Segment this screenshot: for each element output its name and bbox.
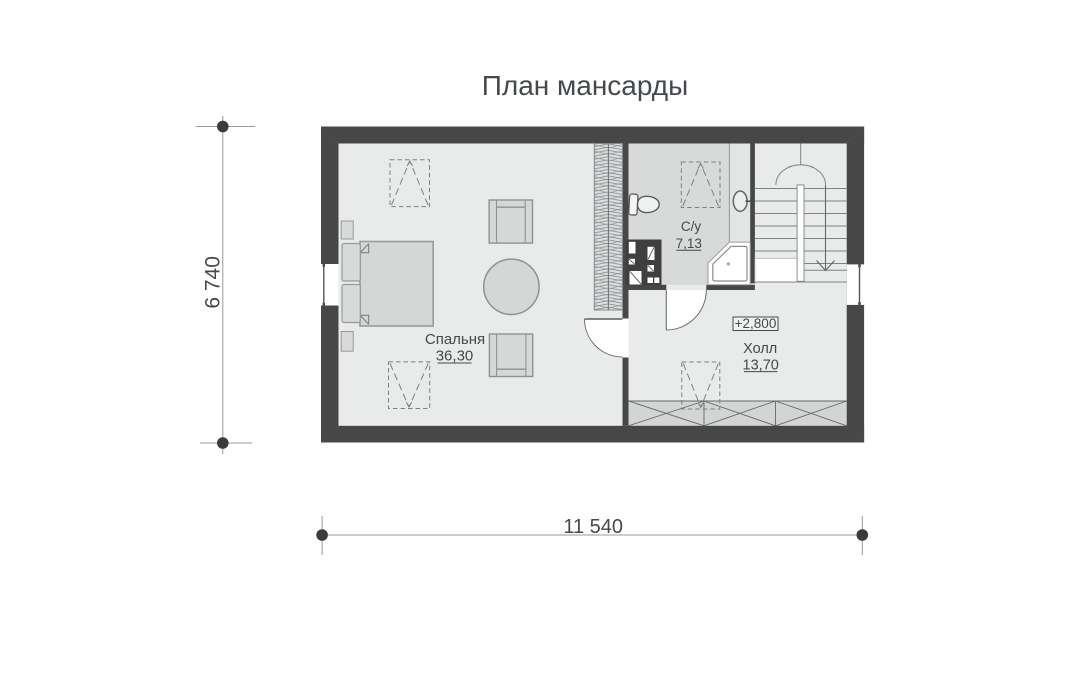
svg-text:Холл: Холл [743,341,777,357]
svg-text:11 540: 11 540 [563,516,623,538]
svg-text:6 740: 6 740 [202,256,225,309]
svg-text:36,30: 36,30 [436,348,474,365]
svg-text:7,13: 7,13 [676,236,702,251]
svg-text:План мансарды: План мансарды [482,70,689,101]
svg-text:С/у: С/у [681,219,702,234]
svg-text:+2,800: +2,800 [735,316,777,331]
svg-text:13,70: 13,70 [743,357,779,373]
svg-text:Спальня: Спальня [425,331,485,348]
